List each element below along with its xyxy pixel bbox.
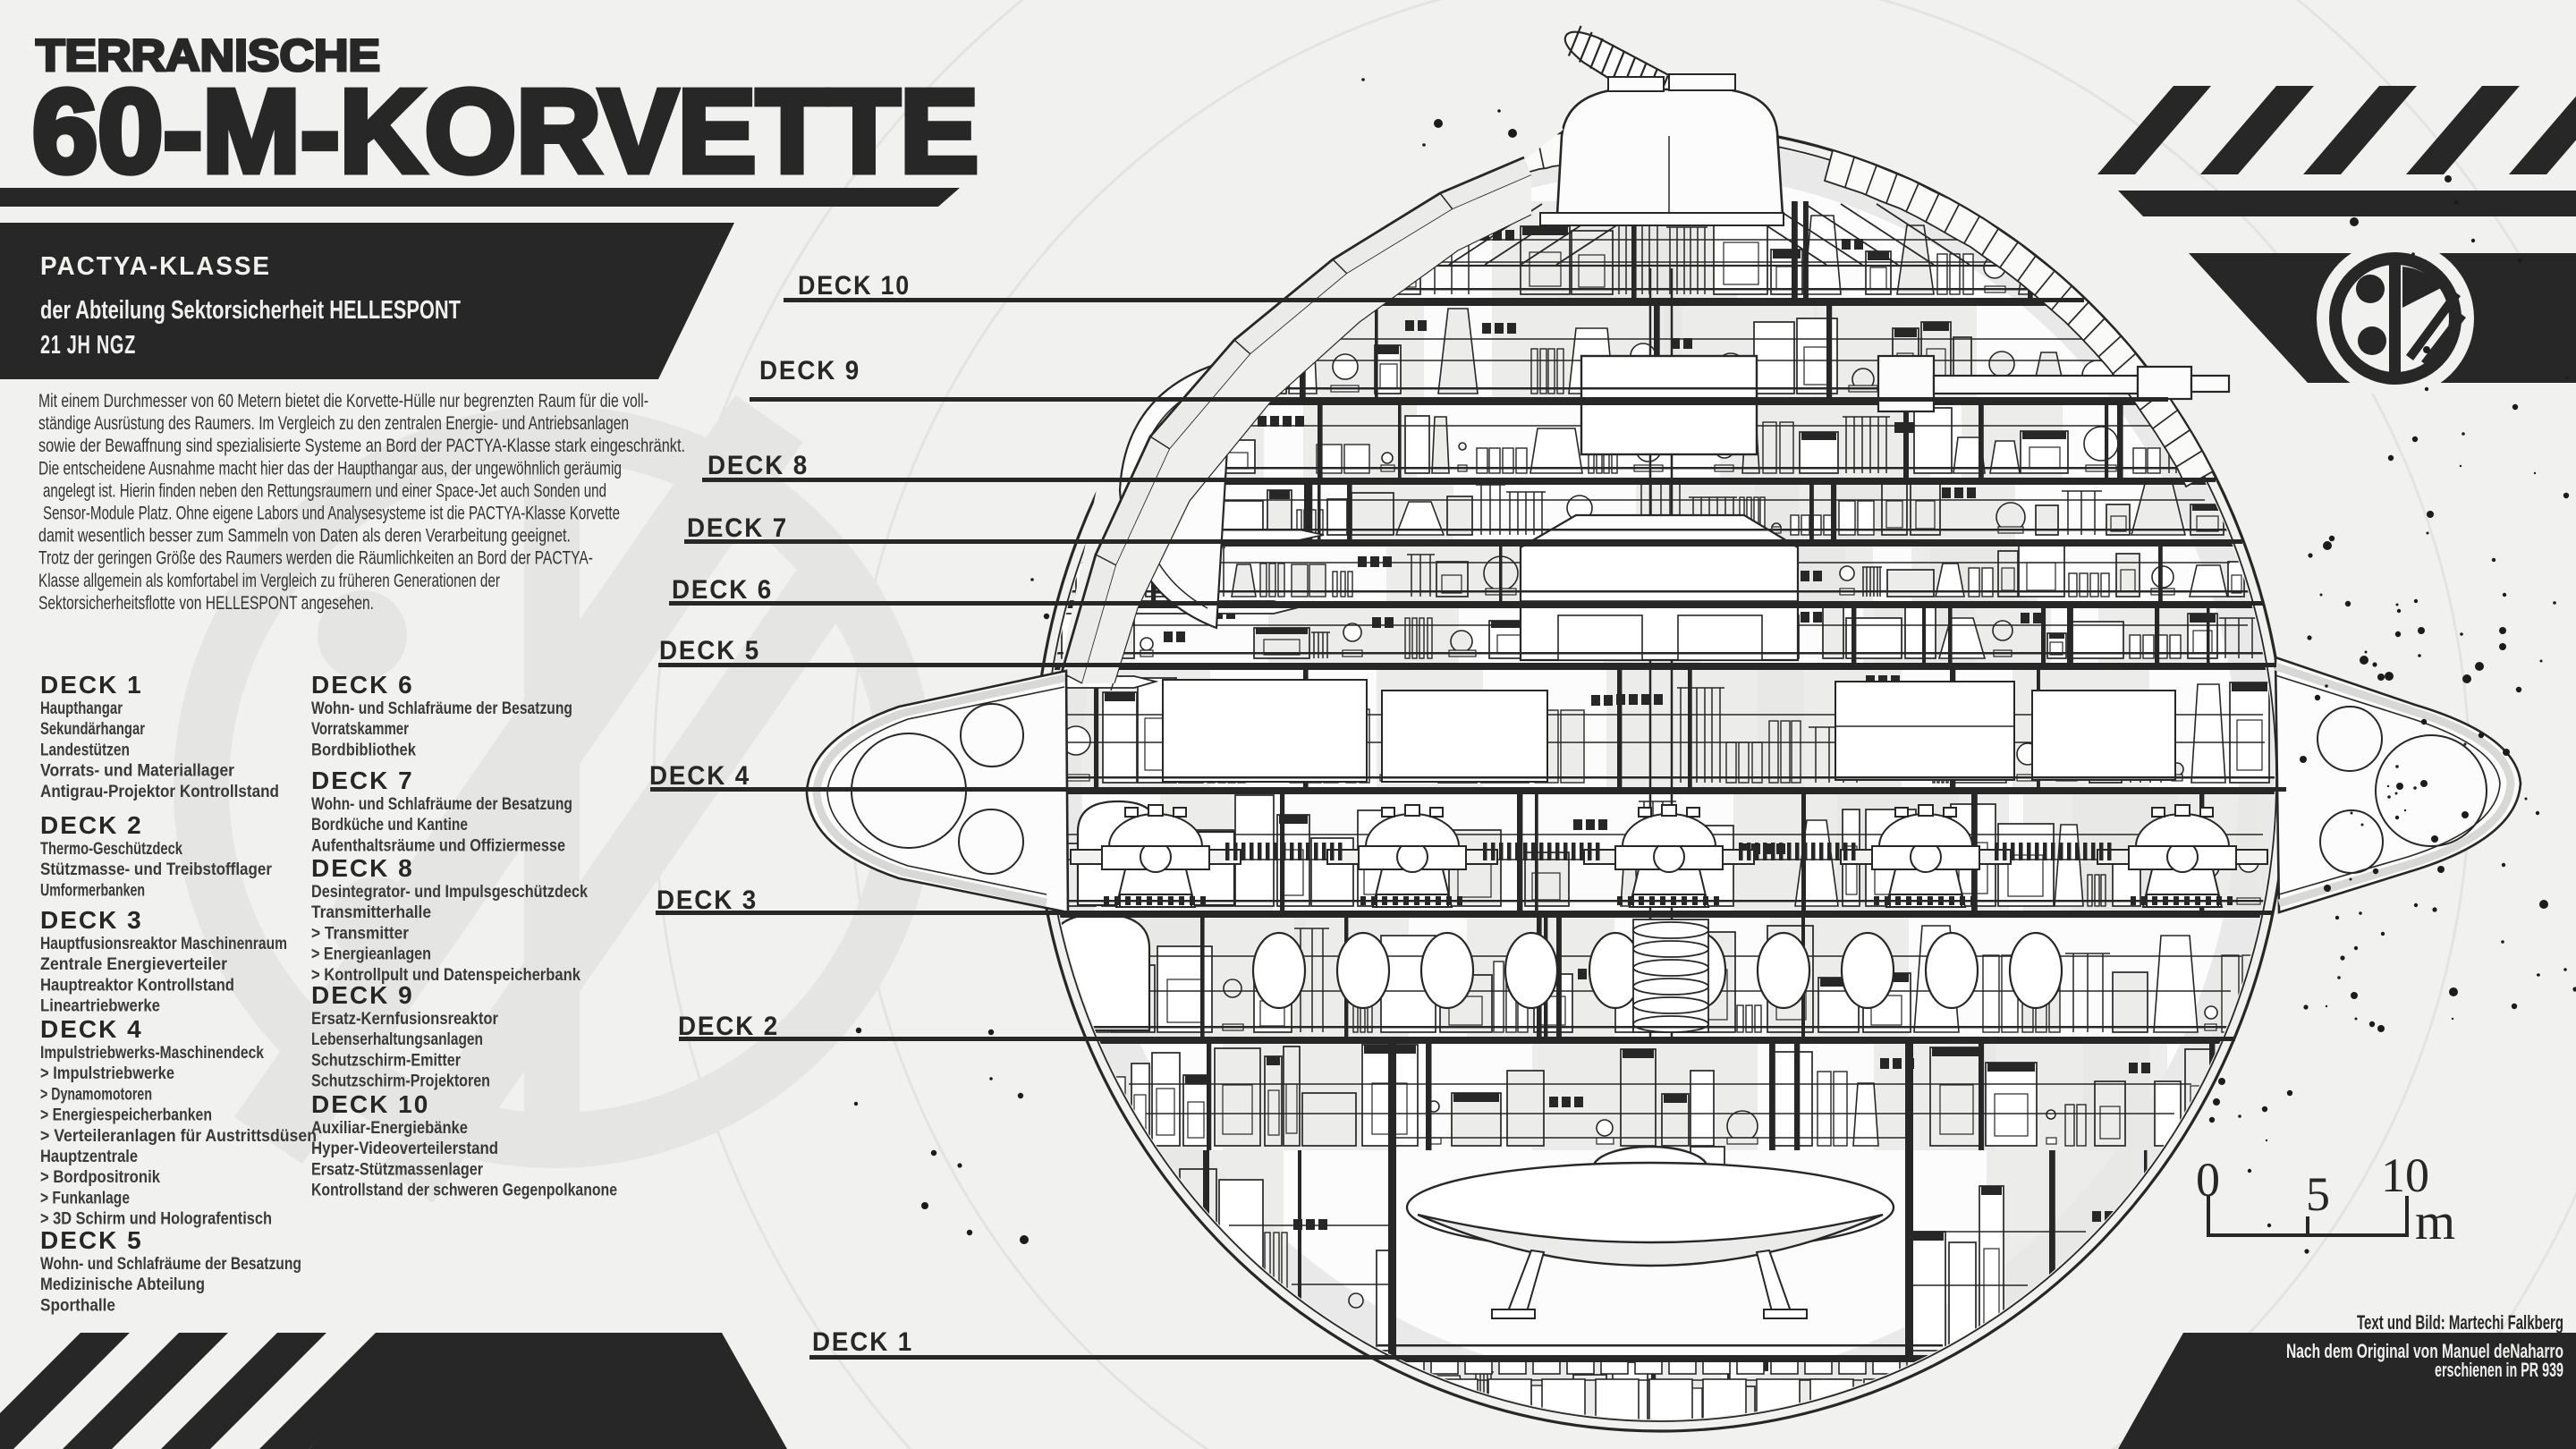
- svg-text:DECK 6: DECK 6: [311, 671, 414, 699]
- svg-text:> Bordpositronik: > Bordpositronik: [40, 1167, 160, 1187]
- svg-text:Hauptfusionsreaktor Maschinenr: Hauptfusionsreaktor Maschinenraum: [40, 934, 287, 953]
- svg-text:Sektorsicherheitsflotte von HE: Sektorsicherheitsflotte von HELLESPONT a…: [38, 592, 374, 614]
- svg-text:Bordbibliothek: Bordbibliothek: [311, 740, 416, 759]
- svg-text:Hyper-Videoverteilerstand: Hyper-Videoverteilerstand: [311, 1139, 498, 1158]
- svg-text:5: 5: [2306, 1167, 2330, 1221]
- svg-text:60-M-KORVETTE: 60-M-KORVETTE: [32, 65, 979, 197]
- svg-text:Impulstriebwerks-Maschinendeck: Impulstriebwerks-Maschinendeck: [40, 1043, 264, 1063]
- svg-text:Transmitterhalle: Transmitterhalle: [311, 902, 431, 922]
- svg-text:damit wesentlich besser zum Sa: damit wesentlich besser zum Sammeln von …: [38, 525, 571, 547]
- svg-text:Schutzschirm-Projektoren: Schutzschirm-Projektoren: [311, 1072, 490, 1091]
- svg-text:Medizinische Abteilung: Medizinische Abteilung: [40, 1275, 205, 1294]
- svg-text:Schutzschirm-Emitter: Schutzschirm-Emitter: [311, 1050, 461, 1070]
- svg-text:Hauptzentrale: Hauptzentrale: [40, 1147, 138, 1166]
- svg-text:DECK 7: DECK 7: [311, 767, 414, 794]
- svg-text:DECK 4: DECK 4: [40, 1015, 143, 1043]
- svg-text:Ersatz-Stützmassenlager: Ersatz-Stützmassenlager: [311, 1159, 483, 1179]
- svg-text:Bordküche und Kantine: Bordküche und Kantine: [311, 815, 468, 835]
- svg-text:Auxiliar-Energiebänke: Auxiliar-Energiebänke: [311, 1118, 468, 1138]
- svg-text:Umformerbanken: Umformerbanken: [40, 880, 145, 900]
- svg-text:DECK 8: DECK 8: [708, 451, 809, 480]
- svg-text:Desintegrator- und Impulsgesch: Desintegrator- und Impulsgeschützdeck: [311, 882, 588, 902]
- svg-text:Text und Bild: Martechi Falkbe: Text und Bild: Martechi Falkberg: [2357, 1311, 2563, 1334]
- svg-text:Ersatz-Kernfusionsreaktor: Ersatz-Kernfusionsreaktor: [311, 1009, 498, 1029]
- svg-text:DECK 8: DECK 8: [311, 854, 414, 882]
- svg-text:Landestützen: Landestützen: [40, 740, 130, 759]
- svg-text:DECK 2: DECK 2: [40, 811, 143, 839]
- svg-text:0: 0: [2196, 1153, 2220, 1207]
- svg-text:Hauptreaktor Kontrollstand: Hauptreaktor Kontrollstand: [40, 975, 234, 995]
- svg-text:Wohn- und Schlafräume der Besa: Wohn- und Schlafräume der Besatzung: [311, 699, 572, 718]
- svg-text:> Impulstriebwerke: > Impulstriebwerke: [40, 1063, 174, 1083]
- svg-text:Klasse allgemein als komfortab: Klasse allgemein als komfortabel im Verg…: [38, 570, 500, 591]
- svg-text:Vorrats- und Materiallager: Vorrats- und Materiallager: [40, 761, 234, 781]
- svg-text:sowie der Bewaffnung sind spez: sowie der Bewaffnung sind spezialisierte…: [38, 435, 685, 456]
- svg-text:> Energiespeicherbanken: > Energiespeicherbanken: [40, 1106, 212, 1125]
- svg-text:Wohn- und Schlafräume der Besa: Wohn- und Schlafräume der Besatzung: [311, 794, 572, 814]
- svg-text:Vorratskammer: Vorratskammer: [311, 719, 409, 739]
- svg-text:Haupthangar: Haupthangar: [40, 699, 123, 718]
- svg-text:DECK 3: DECK 3: [657, 885, 758, 915]
- svg-text:DECK 1: DECK 1: [40, 671, 143, 699]
- svg-text:DECK 9: DECK 9: [759, 356, 860, 386]
- svg-text:DECK 10: DECK 10: [311, 1090, 429, 1118]
- svg-text:Lebenserhaltungsanlagen: Lebenserhaltungsanlagen: [311, 1030, 483, 1049]
- svg-text:DECK 1: DECK 1: [812, 1327, 913, 1357]
- svg-text:DECK 6: DECK 6: [672, 575, 773, 605]
- svg-text:Die entscheidene Ausnahme mach: Die entscheidene Ausnahme macht hier das…: [38, 457, 622, 479]
- svg-text:Sensor-Module Platz. Ohne eige: Sensor-Module Platz. Ohne eigene Labors …: [43, 503, 620, 524]
- svg-text:Sekundärhangar: Sekundärhangar: [40, 719, 145, 739]
- svg-text:DECK 5: DECK 5: [659, 636, 760, 665]
- svg-text:> Funkanlage: > Funkanlage: [40, 1188, 130, 1207]
- svg-text:PACTYA-KLASSE: PACTYA-KLASSE: [40, 252, 271, 281]
- svg-text:> Energieanlagen: > Energieanlagen: [311, 945, 431, 964]
- svg-text:Zentrale Energieverteiler: Zentrale Energieverteiler: [40, 954, 227, 974]
- svg-text:DECK 3: DECK 3: [40, 906, 143, 934]
- svg-text:Wohn- und Schlafräume der Besa: Wohn- und Schlafräume der Besatzung: [40, 1254, 301, 1274]
- svg-text:erschienen in PR 939: erschienen in PR 939: [2435, 1359, 2563, 1381]
- svg-text:DECK 9: DECK 9: [311, 981, 414, 1009]
- svg-text:Aufenthaltsräume und Offizierm: Aufenthaltsräume und Offiziermesse: [311, 835, 565, 855]
- svg-text:Trotz der geringen Größe des R: Trotz der geringen Größe des Raumers wer…: [38, 547, 593, 569]
- svg-text:Sporthalle: Sporthalle: [40, 1295, 115, 1315]
- svg-text:DECK 7: DECK 7: [687, 513, 788, 543]
- svg-text:> Transmitter: > Transmitter: [311, 923, 409, 943]
- svg-text:Mit einem Durchmesser von 60 M: Mit einem Durchmesser von 60 Metern biet…: [38, 390, 648, 411]
- svg-text:angelegt ist. Hierin finden ne: angelegt ist. Hierin finden neben den Re…: [43, 479, 606, 501]
- svg-text:Lineartriebwerke: Lineartriebwerke: [40, 996, 160, 1016]
- svg-text:DECK 4: DECK 4: [649, 761, 750, 791]
- svg-text:DECK 2: DECK 2: [678, 1012, 779, 1041]
- svg-text:m: m: [2415, 1192, 2455, 1250]
- svg-text:der Abteilung Sektorsicherheit: der Abteilung Sektorsicherheit HELLESPON…: [40, 296, 461, 325]
- svg-text:21 JH NGZ: 21 JH NGZ: [40, 331, 136, 360]
- svg-text:ständige Ausrüstung des Raumer: ständige Ausrüstung des Raumers. Im Verg…: [38, 412, 629, 434]
- svg-text:> Dynamomotoren: > Dynamomotoren: [40, 1084, 152, 1104]
- svg-text:DECK 5: DECK 5: [40, 1226, 143, 1254]
- svg-text:DECK 10: DECK 10: [798, 271, 911, 301]
- svg-text:Thermo-Geschützdeck: Thermo-Geschützdeck: [40, 839, 182, 859]
- svg-text:> Verteileranlagen für Austrit: > Verteileranlagen für Austrittsdüsen: [40, 1126, 317, 1146]
- svg-text:Kontrollstand der schweren Geg: Kontrollstand der schweren Gegenpolkanon…: [311, 1181, 617, 1200]
- svg-text:Antigrau-Projektor Kontrollsta: Antigrau-Projektor Kontrollstand: [40, 782, 279, 801]
- svg-text:Stützmasse- und Treibstofflage: Stützmasse- und Treibstofflager: [40, 860, 272, 879]
